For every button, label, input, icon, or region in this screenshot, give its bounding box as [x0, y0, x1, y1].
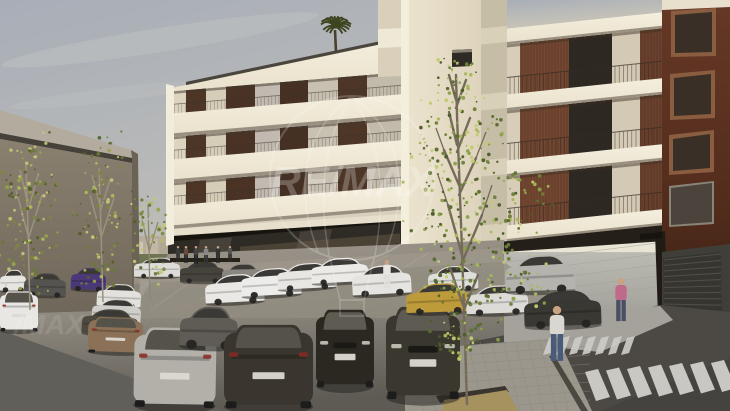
svg-text:/MAX: /MAX: [12, 309, 86, 340]
svg-text:RE/MAX: RE/MAX: [270, 158, 436, 205]
